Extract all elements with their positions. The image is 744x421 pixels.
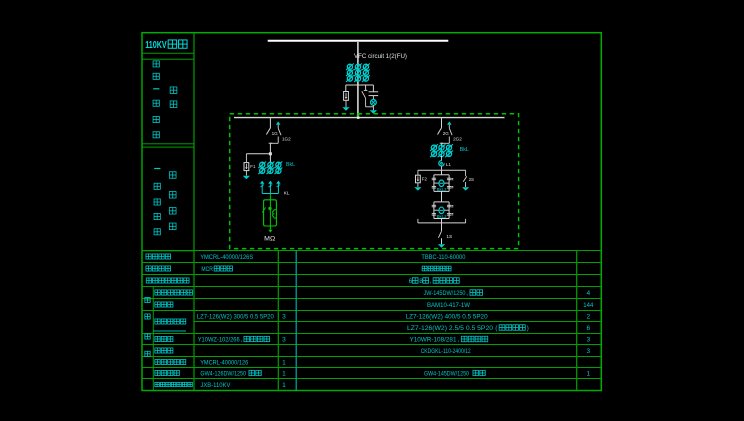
svg-text:LZ7-126(W2) 300/5 0.5 5P20: LZ7-126(W2) 300/5 0.5 5P20 — [197, 313, 274, 320]
svg-text:BkL2: BkL2 — [437, 214, 448, 219]
svg-text:,: , — [240, 336, 242, 343]
svg-text:JW-145DW/1250: JW-145DW/1250 — [424, 290, 466, 297]
svg-text:GW4-126DW/1250: GW4-126DW/1250 — [200, 370, 246, 377]
svg-text:1: 1 — [282, 382, 286, 389]
svg-text:1: 1 — [282, 359, 286, 366]
svg-text:3: 3 — [282, 313, 286, 320]
svg-text:1G: 1G — [272, 131, 279, 136]
svg-text:2G: 2G — [443, 131, 450, 136]
svg-text:GW4-145DW/1250: GW4-145DW/1250 — [424, 370, 469, 377]
svg-text:YMCRL-40000/126S: YMCRL-40000/126S — [200, 254, 254, 261]
svg-text:): ) — [527, 325, 529, 332]
svg-text:2: 2 — [586, 313, 590, 320]
svg-text:Y10WR-108/281: Y10WR-108/281 — [410, 336, 457, 343]
svg-text:KL: KL — [284, 191, 290, 197]
svg-text:BkL: BkL — [286, 162, 295, 168]
svg-text:2S: 2S — [469, 177, 474, 182]
svg-text:110KV: 110KV — [145, 40, 167, 51]
svg-text:LZ7-126(W2) 2.5/5 0.5 5P20: LZ7-126(W2) 2.5/5 0.5 5P20 — [407, 325, 493, 332]
svg-text:144: 144 — [583, 302, 593, 309]
svg-text:,: , — [458, 336, 460, 343]
svg-text:YMCRL-40000/126: YMCRL-40000/126 — [200, 359, 248, 366]
svg-text:1: 1 — [282, 370, 286, 377]
svg-text:BkL: BkL — [460, 147, 469, 153]
svg-text:F2: F2 — [422, 177, 428, 182]
svg-text:,: , — [466, 290, 468, 297]
svg-text:VFC circuit 1(2(FU): VFC circuit 1(2(FU) — [354, 53, 407, 60]
svg-text:TBBC-110-60000: TBBC-110-60000 — [421, 254, 465, 261]
svg-text:F1: F1 — [250, 164, 256, 169]
svg-text:LZ7-126(W2) 400/5 0.5 5P20: LZ7-126(W2) 400/5 0.5 5P20 — [406, 313, 488, 320]
svg-text:6: 6 — [586, 325, 590, 332]
svg-text:MCR: MCR — [201, 266, 213, 273]
svg-text:MΩ: MΩ — [264, 236, 275, 243]
svg-text:L1: L1 — [446, 162, 451, 167]
svg-text:CKDGKL-110-2400/12: CKDGKL-110-2400/12 — [421, 348, 471, 355]
svg-text:,: , — [430, 278, 432, 285]
svg-text:BAM10-417-1W: BAM10-417-1W — [427, 302, 471, 309]
svg-text:4: 4 — [586, 290, 590, 297]
svg-text:JXB-110KV: JXB-110KV — [200, 382, 231, 389]
svg-text:3: 3 — [586, 348, 590, 355]
svg-text:Y10WZ-102/266: Y10WZ-102/266 — [198, 336, 240, 343]
svg-text:3: 3 — [586, 336, 590, 343]
svg-text:1S: 1S — [446, 234, 452, 240]
svg-text:3: 3 — [282, 336, 286, 343]
svg-text:2G2: 2G2 — [453, 136, 462, 141]
svg-text:BkL2: BkL2 — [437, 187, 448, 192]
svg-text:1G2: 1G2 — [282, 136, 291, 141]
svg-text:1: 1 — [586, 370, 590, 377]
